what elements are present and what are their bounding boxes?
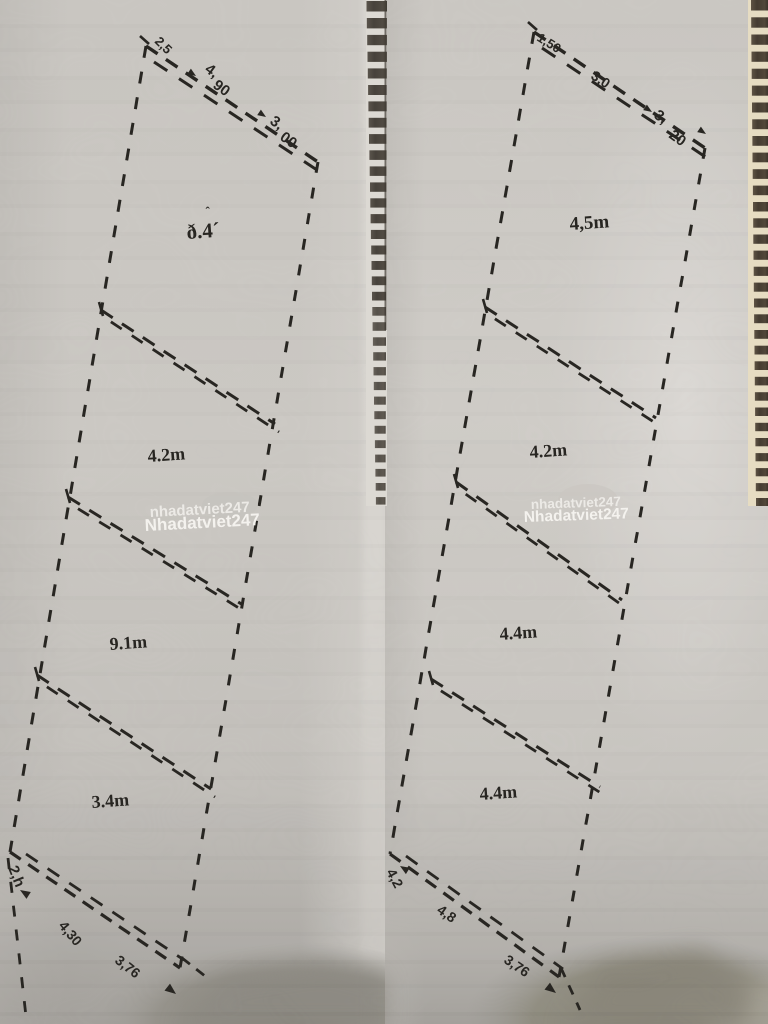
svg-text:3.4m: 3.4m bbox=[91, 789, 130, 812]
svg-text:4.4m: 4.4m bbox=[479, 781, 518, 804]
svg-text:4.2m: 4.2m bbox=[529, 439, 568, 462]
svg-text:9.1m: 9.1m bbox=[109, 631, 148, 654]
svg-text:ð.4´: ð.4´ bbox=[186, 218, 221, 244]
svg-text:4.4m: 4.4m bbox=[499, 621, 538, 644]
svg-text:4,5m: 4,5m bbox=[569, 211, 610, 235]
svg-text:4.2m: 4.2m bbox=[147, 443, 186, 466]
